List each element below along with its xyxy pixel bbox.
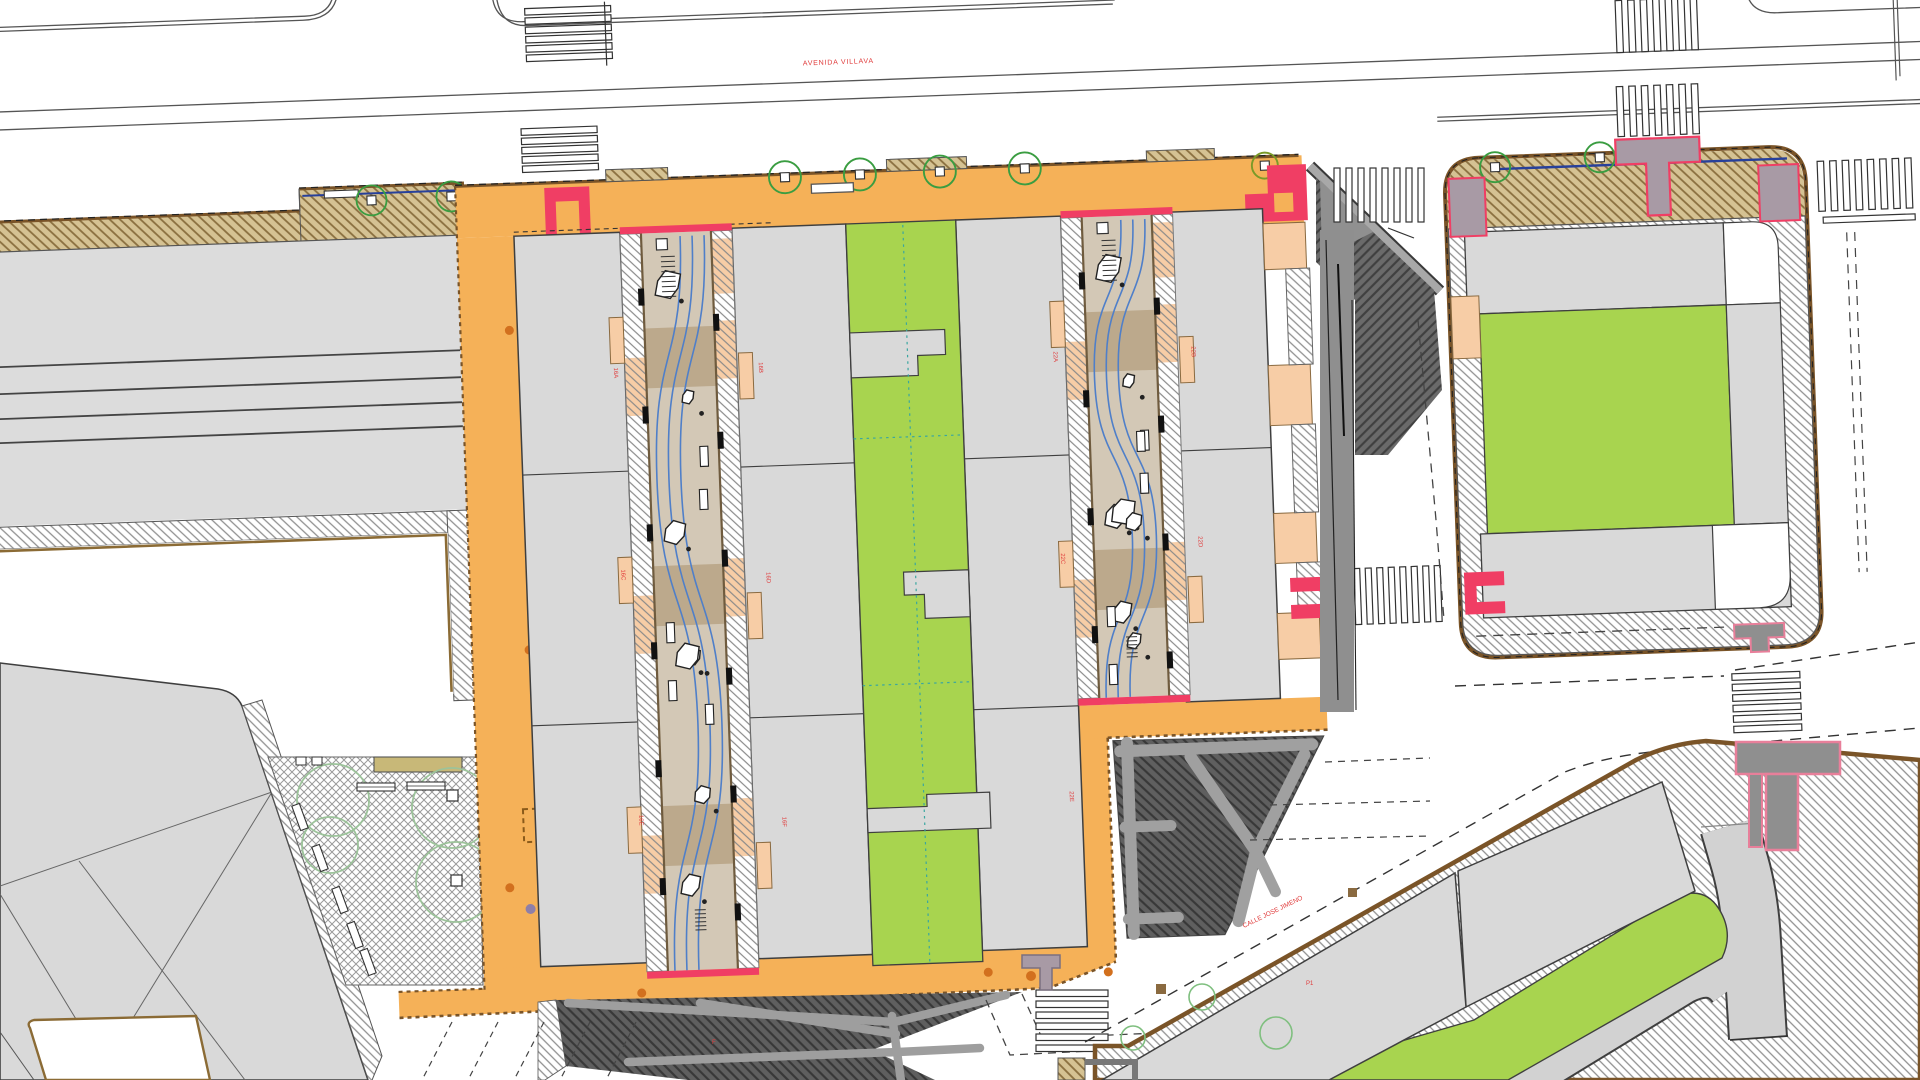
svg-text:F: F (712, 1040, 716, 1046)
svg-text:22A: 22A (1052, 351, 1058, 362)
svg-text:16B: 16B (757, 362, 763, 373)
svg-text:22E: 22E (1068, 791, 1074, 802)
svg-text:22C: 22C (1059, 553, 1065, 565)
svg-text:16F: 16F (780, 817, 786, 828)
svg-text:16A: 16A (612, 367, 618, 378)
svg-text:22B: 22B (1189, 346, 1195, 357)
svg-text:P1: P1 (1306, 981, 1314, 987)
svg-text:22D: 22D (1196, 536, 1202, 548)
svg-text:16E: 16E (637, 815, 643, 826)
svg-text:16C: 16C (619, 569, 625, 581)
svg-text:16D: 16D (764, 572, 770, 584)
